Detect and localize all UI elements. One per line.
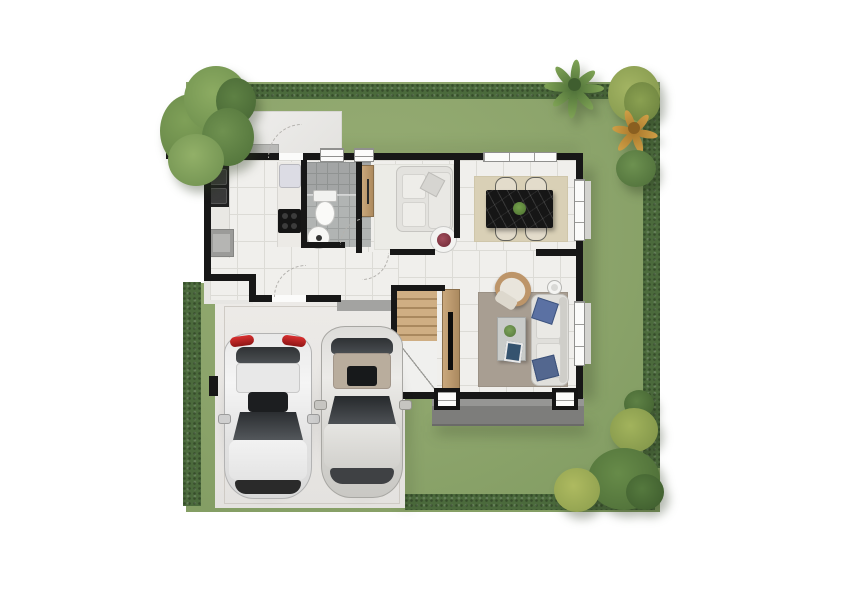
floor-plan-image xyxy=(0,0,842,595)
shrubs-southeast xyxy=(548,382,666,514)
tree-northwest xyxy=(158,58,258,190)
palm-northeast xyxy=(548,58,606,120)
shrubs-northeast xyxy=(602,62,664,187)
